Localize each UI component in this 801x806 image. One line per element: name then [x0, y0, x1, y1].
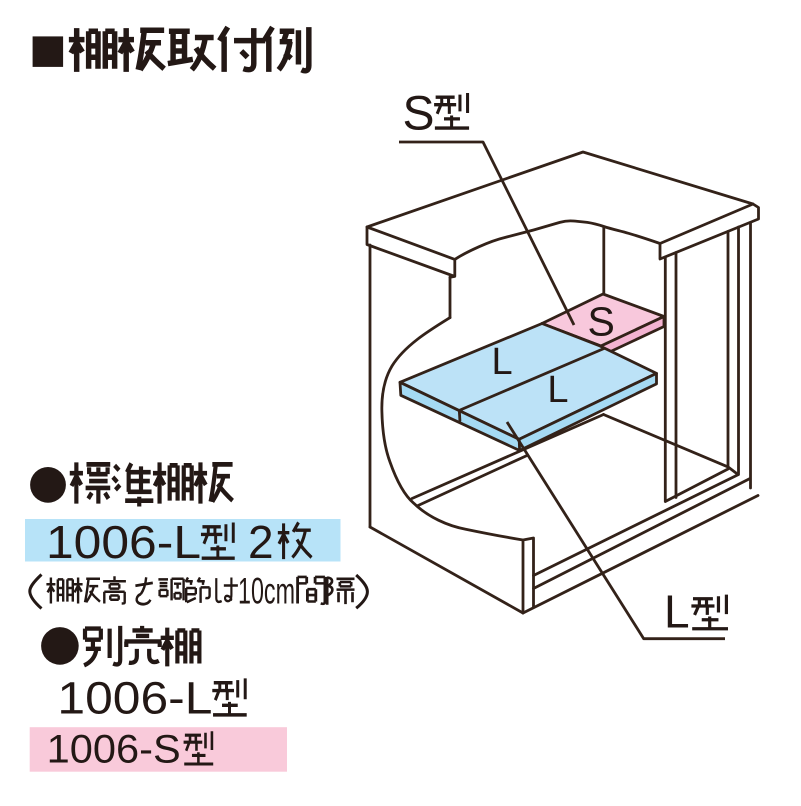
svg-text:L: L [547, 369, 568, 411]
svg-text:1006-L: 1006-L [46, 516, 201, 568]
svg-text:1006-L: 1006-L [57, 672, 212, 723]
svg-text:1006-S: 1006-S [47, 728, 181, 772]
svg-text:S: S [403, 88, 435, 141]
svg-text:S: S [588, 299, 615, 345]
svg-text:10cm: 10cm [238, 571, 295, 612]
svg-text:L: L [492, 341, 513, 383]
svg-text:2: 2 [248, 516, 274, 568]
svg-text:L: L [664, 586, 690, 638]
